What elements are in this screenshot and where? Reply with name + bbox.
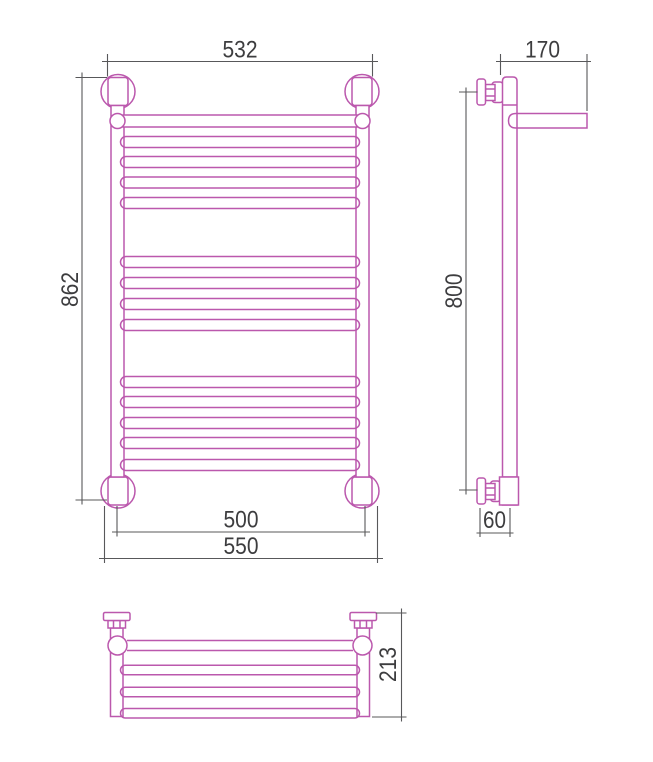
front-shelf-ring-right (355, 114, 370, 129)
side-dim-bracket-height: 800 (441, 88, 478, 495)
front-rung (121, 438, 360, 449)
top-shelf-bar (121, 687, 360, 697)
dim-label-overall-width: 550 (224, 533, 259, 560)
front-view: 532 862 500 550 (57, 37, 383, 564)
top-bracket-nut-right (355, 621, 373, 629)
side-view: 170 800 60 (441, 37, 591, 538)
side-wall-flange-top (477, 79, 486, 105)
front-rung (121, 177, 360, 188)
side-bracket-nut-top (486, 85, 496, 101)
front-shelf-bar (118, 115, 363, 127)
technical-drawing-page: 532 862 500 550 (0, 0, 653, 762)
front-rung (121, 418, 360, 429)
front-rung (121, 198, 360, 209)
front-collar-bottom-right (352, 477, 372, 505)
top-dim-overall-depth: 213 (372, 609, 407, 722)
top-shelf-ring-left (108, 636, 127, 655)
side-post-tube (503, 77, 518, 505)
front-collar-top-left (108, 78, 128, 106)
side-bottom-union-block (500, 477, 519, 505)
front-post-right (356, 106, 369, 478)
dim-label-overall-height: 862 (57, 272, 84, 307)
top-view: 213 (104, 609, 407, 722)
front-rung (121, 397, 360, 408)
top-wall-flange-right (350, 613, 377, 621)
dim-label-top-width: 532 (223, 37, 258, 64)
top-shelf-bar (121, 665, 360, 675)
front-rung (121, 299, 360, 310)
front-rung (121, 278, 360, 289)
dim-label-overall-depth: 213 (375, 647, 402, 682)
front-dim-top-width: 532 (102, 37, 378, 77)
side-shelf-arm (509, 114, 588, 129)
front-rung (121, 137, 360, 148)
front-rung (121, 320, 360, 331)
front-dim-pipe-span: 500 (112, 506, 370, 537)
front-rung (121, 377, 360, 388)
dim-label-bracket-height: 800 (441, 274, 468, 309)
front-dim-overall-height: 862 (57, 73, 107, 505)
side-bracket-nut-bottom (486, 484, 496, 500)
top-wall-flange-left (104, 613, 131, 621)
front-collar-top-right (352, 78, 372, 106)
side-wall-flange-bottom (477, 478, 486, 504)
front-shelf-ring-left (110, 114, 125, 129)
dim-label-shelf-depth: 170 (525, 37, 560, 64)
front-collar-bottom-left (108, 477, 128, 505)
top-bracket-nut-left (108, 621, 126, 629)
front-rung (121, 157, 360, 168)
towel-rail-drawing: 532 862 500 550 (0, 0, 653, 762)
dim-label-wall-offset: 60 (483, 507, 506, 534)
front-rung (121, 460, 360, 471)
side-dim-wall-offset: 60 (477, 507, 514, 537)
front-rung (121, 257, 360, 268)
dim-label-pipe-span: 500 (224, 507, 259, 534)
front-post-left (111, 106, 124, 478)
top-shelf-ring-right (353, 636, 372, 655)
top-shelf-bar (121, 709, 360, 719)
